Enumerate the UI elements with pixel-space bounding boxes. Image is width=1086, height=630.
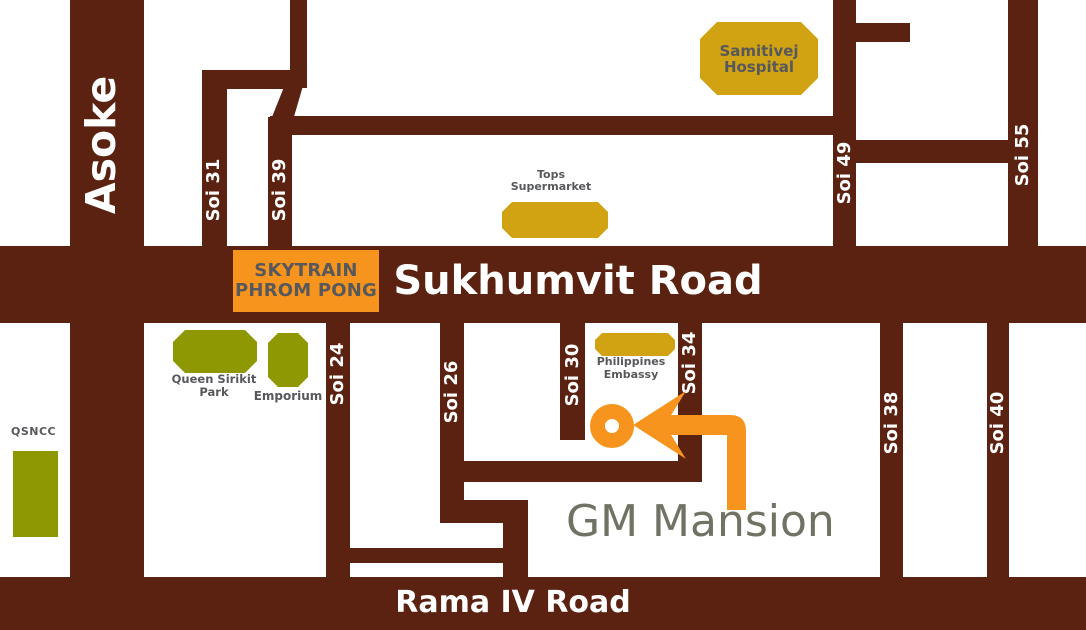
soi24-connector-road bbox=[350, 548, 507, 563]
samitivej-hospital-box: Samitivej Hospital bbox=[700, 22, 818, 95]
asoke-road-lower bbox=[70, 323, 144, 577]
soi-55-label: Soi 55 bbox=[1012, 113, 1034, 197]
qsncc-label: QSNCC bbox=[11, 426, 81, 438]
soi-39-label: Soi 39 bbox=[269, 148, 291, 232]
soi-31-label: Soi 31 bbox=[203, 148, 225, 232]
inner-loop-road bbox=[440, 461, 702, 482]
soi-31-39-connector-road bbox=[202, 70, 292, 89]
samitivej-hospital-label-line2: Hospital bbox=[719, 59, 798, 75]
philippines-embassy-box bbox=[595, 333, 675, 356]
bangkok-sukhumvit-map: Samitivej Hospital Tops Supermarket Quee… bbox=[0, 0, 1086, 630]
soi-49-stub-road bbox=[856, 23, 910, 42]
soi-40-label: Soi 40 bbox=[987, 381, 1009, 465]
soi-49-label: Soi 49 bbox=[834, 131, 856, 215]
tops-supermarket-box bbox=[502, 202, 608, 238]
gm-mansion-label: GM Mansion bbox=[566, 496, 835, 547]
queen-sirikit-park-box bbox=[173, 330, 257, 373]
inner-step-road bbox=[440, 500, 528, 523]
soi-34-label: Soi 34 bbox=[679, 321, 701, 405]
skytrain-label-line2: PHROM PONG bbox=[235, 281, 377, 301]
asoke-road-label: Asoke bbox=[78, 45, 124, 245]
gm-location-ring-marker bbox=[598, 412, 627, 441]
soi-38-label: Soi 38 bbox=[881, 381, 903, 465]
sukhumvit-road-label: Sukhumvit Road bbox=[378, 257, 778, 305]
soi-30-label: Soi 30 bbox=[562, 333, 584, 417]
samitivej-hospital-label-line1: Samitivej bbox=[719, 43, 798, 59]
qsncc-box bbox=[13, 451, 58, 537]
skytrain-label-line1: SKYTRAIN bbox=[235, 261, 377, 281]
emporium-box bbox=[268, 333, 308, 387]
soi-39-upper-road bbox=[290, 0, 307, 88]
soi-26-label: Soi 26 bbox=[441, 350, 463, 434]
skytrain-phrom-pong-station: SKYTRAIN PHROM PONG bbox=[233, 250, 379, 312]
soi-24-label: Soi 24 bbox=[327, 332, 349, 416]
north-parallel-road-west bbox=[270, 116, 856, 135]
tops-supermarket-label: Tops Supermarket bbox=[481, 169, 621, 193]
rama-iv-road-label: Rama IV Road bbox=[353, 585, 673, 621]
